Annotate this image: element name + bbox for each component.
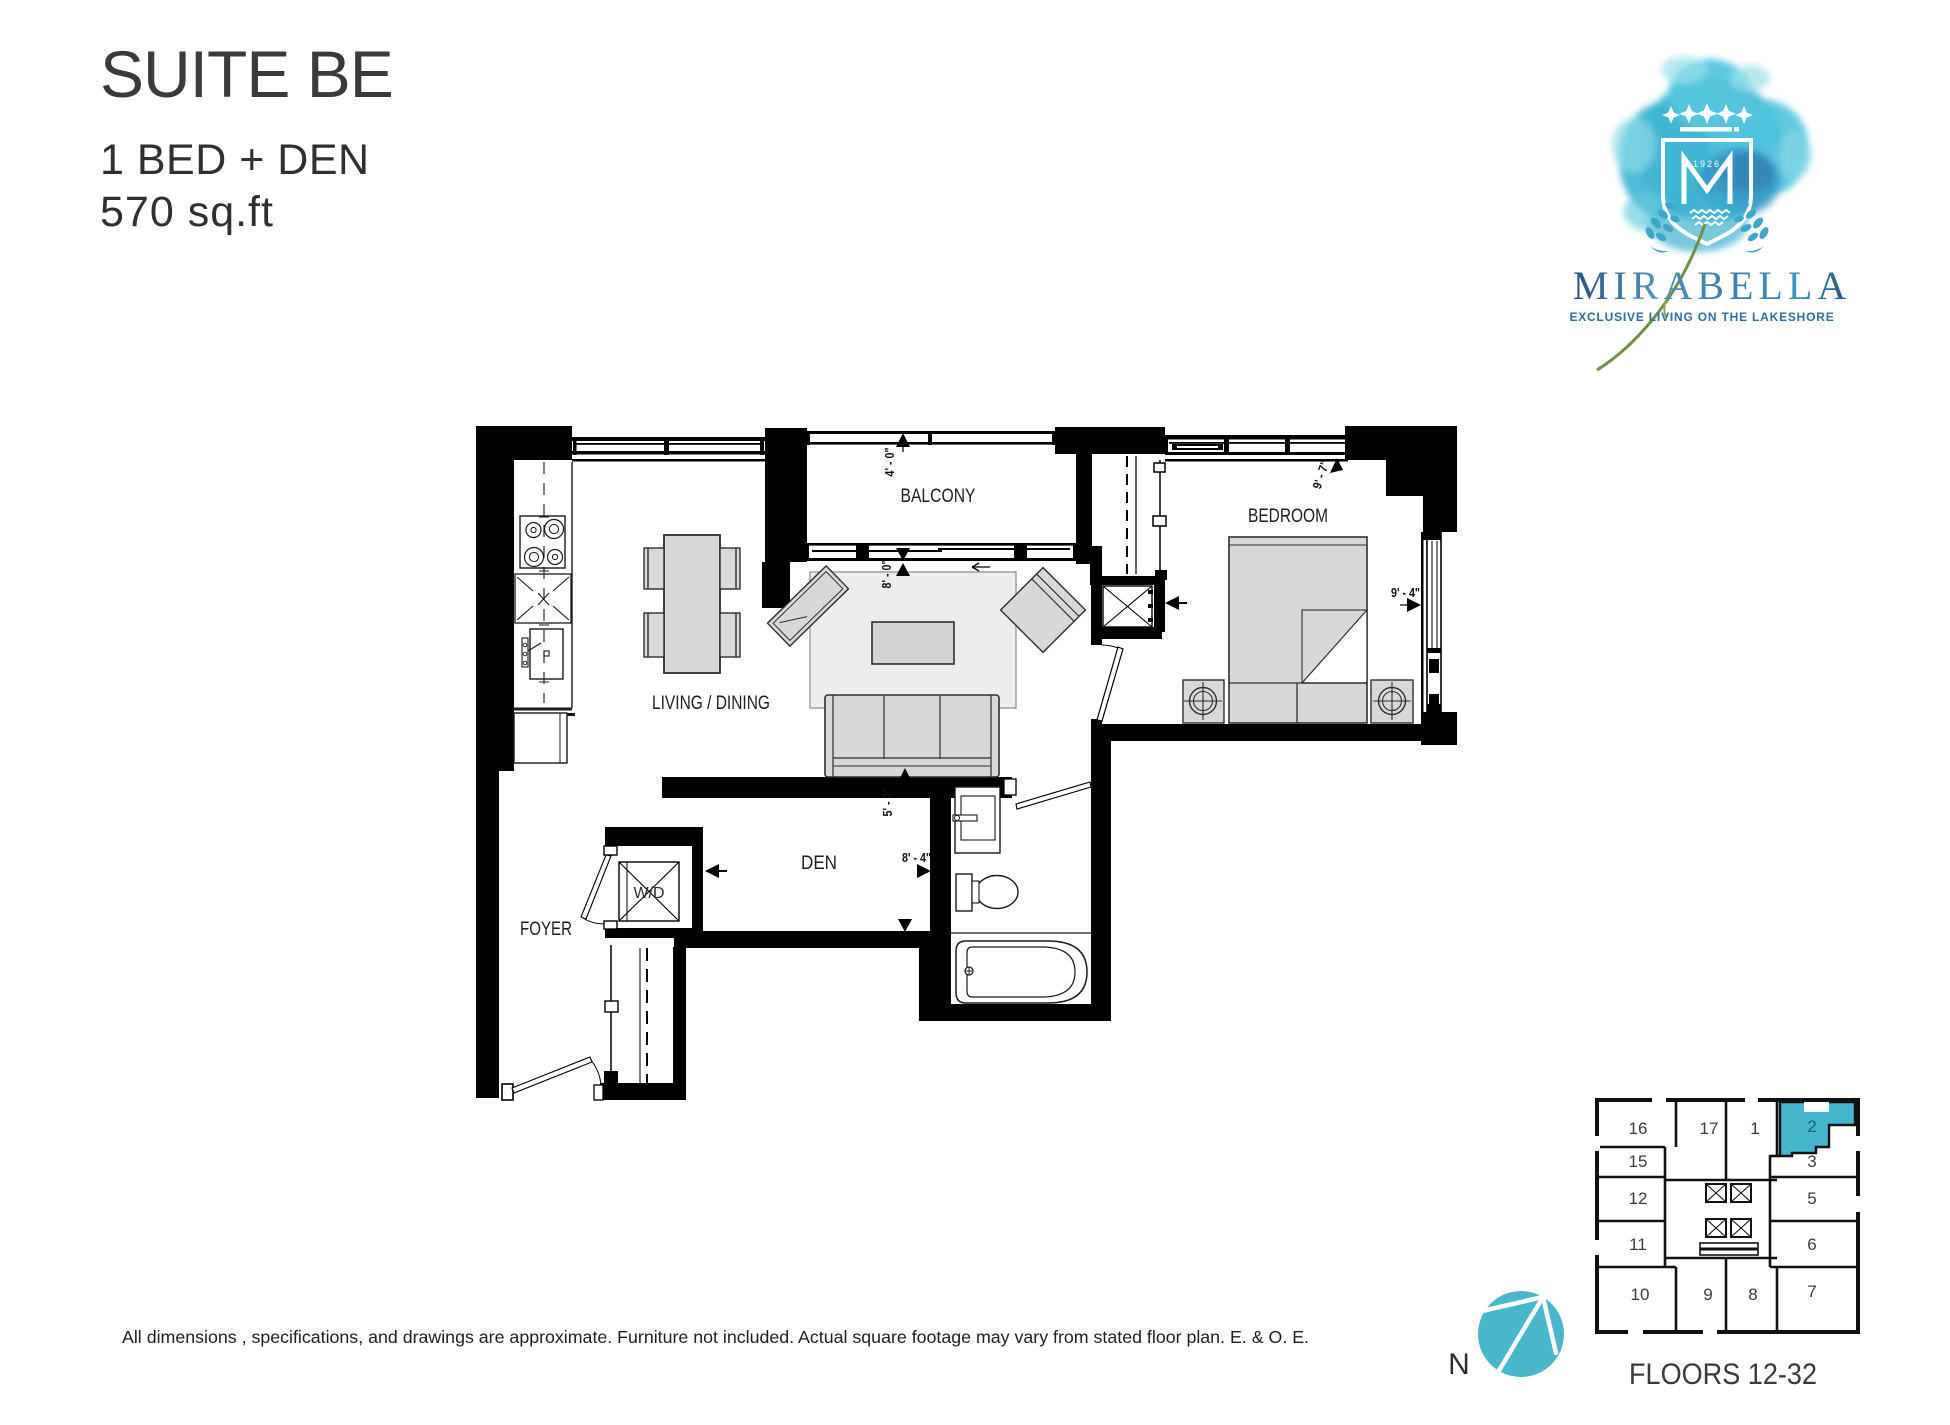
svg-text:1 BED + DEN: 1 BED + DEN xyxy=(100,136,370,184)
svg-text:10: 10 xyxy=(1631,1285,1650,1304)
svg-text:9' - 7": 9' - 7" xyxy=(1310,459,1332,491)
svg-text:12: 12 xyxy=(1629,1189,1648,1208)
svg-text:4' - 0": 4' - 0" xyxy=(883,447,897,476)
svg-text:SUITE BE: SUITE BE xyxy=(100,37,393,111)
svg-text:2: 2 xyxy=(1807,1117,1816,1136)
svg-text:15: 15 xyxy=(1629,1152,1648,1171)
svg-text:BALCONY: BALCONY xyxy=(901,486,976,507)
svg-text:3: 3 xyxy=(1807,1152,1816,1171)
svg-text:1926: 1926 xyxy=(1693,159,1721,169)
svg-text:FLOORS 12-32: FLOORS 12-32 xyxy=(1629,1358,1817,1391)
svg-text:11: 11 xyxy=(1629,1235,1647,1254)
svg-text:N: N xyxy=(1448,1348,1470,1381)
svg-text:16: 16 xyxy=(1629,1119,1648,1138)
svg-text:8' - 4": 8' - 4" xyxy=(902,851,931,865)
svg-text:8: 8 xyxy=(1748,1285,1757,1304)
svg-text:DEN: DEN xyxy=(801,852,837,874)
svg-text:6: 6 xyxy=(1807,1235,1816,1254)
svg-text:9' - 4": 9' - 4" xyxy=(1391,586,1420,600)
svg-text:7: 7 xyxy=(1807,1282,1816,1301)
svg-text:EXCLUSIVE LIVING ON THE LAKESH: EXCLUSIVE LIVING ON THE LAKESHORE xyxy=(1569,310,1834,324)
svg-text:5: 5 xyxy=(1807,1189,1816,1208)
svg-text:17: 17 xyxy=(1700,1119,1719,1138)
svg-text:5' - 2": 5' - 2" xyxy=(881,787,895,816)
svg-text:W/D: W/D xyxy=(634,885,665,902)
svg-text:All dimensions , specification: All dimensions , specifications, and dra… xyxy=(122,1327,1309,1347)
svg-text:MIRABELLA: MIRABELLA xyxy=(1573,263,1851,308)
svg-text:FOYER: FOYER xyxy=(520,919,572,940)
svg-text:9: 9 xyxy=(1703,1285,1712,1304)
svg-text:8' - 0": 8' - 0" xyxy=(880,559,894,588)
svg-text:570 sq.ft: 570 sq.ft xyxy=(100,188,274,236)
svg-text:LIVING / DINING: LIVING / DINING xyxy=(652,692,770,714)
svg-text:BEDROOM: BEDROOM xyxy=(1248,505,1328,527)
svg-text:1: 1 xyxy=(1750,1119,1759,1138)
